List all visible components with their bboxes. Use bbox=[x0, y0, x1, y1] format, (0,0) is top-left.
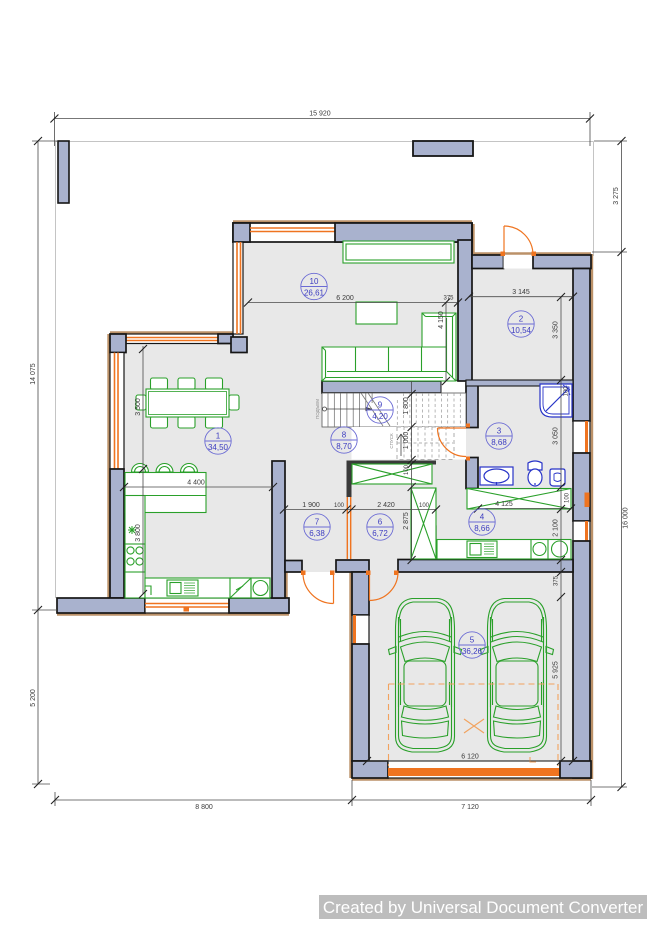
svg-text:8,70: 8,70 bbox=[336, 442, 352, 451]
svg-text:4: 4 bbox=[480, 513, 485, 522]
svg-text:4 150: 4 150 bbox=[438, 311, 445, 329]
svg-text:100: 100 bbox=[404, 464, 410, 475]
svg-text:3 500: 3 500 bbox=[135, 398, 142, 416]
svg-text:6,72: 6,72 bbox=[372, 529, 388, 538]
svg-text:2 875: 2 875 bbox=[403, 512, 410, 530]
svg-text:8,66: 8,66 bbox=[474, 524, 490, 533]
svg-text:34,50: 34,50 bbox=[208, 443, 229, 452]
svg-text:6: 6 bbox=[378, 518, 383, 527]
svg-text:3: 3 bbox=[497, 427, 502, 436]
svg-text:100: 100 bbox=[564, 386, 570, 397]
svg-text:6,38: 6,38 bbox=[309, 529, 325, 538]
svg-text:6 120: 6 120 bbox=[461, 754, 479, 761]
svg-text:10: 10 bbox=[310, 277, 319, 286]
svg-text:375: 375 bbox=[554, 575, 560, 586]
svg-text:2 420: 2 420 bbox=[377, 502, 395, 509]
svg-text:375: 375 bbox=[443, 296, 454, 302]
svg-text:5: 5 bbox=[470, 636, 475, 645]
svg-text:10,54: 10,54 bbox=[511, 326, 532, 335]
svg-text:3 145: 3 145 bbox=[512, 289, 530, 296]
svg-text:100: 100 bbox=[565, 492, 571, 503]
svg-text:6 200: 6 200 bbox=[336, 295, 354, 302]
svg-text:3 050: 3 050 bbox=[553, 427, 560, 445]
svg-text:СПУСК: СПУСК bbox=[389, 433, 394, 449]
svg-text:2 100: 2 100 bbox=[553, 519, 560, 537]
svg-text:7: 7 bbox=[315, 518, 320, 527]
svg-text:26,61: 26,61 bbox=[304, 289, 325, 298]
svg-text:1: 1 bbox=[216, 432, 221, 441]
svg-text:8: 8 bbox=[342, 431, 347, 440]
svg-text:15 920: 15 920 bbox=[309, 111, 331, 118]
svg-text:4 400: 4 400 bbox=[187, 480, 205, 487]
svg-text:1 800: 1 800 bbox=[403, 397, 410, 415]
svg-text:100: 100 bbox=[334, 503, 345, 509]
svg-text:100: 100 bbox=[419, 503, 430, 509]
svg-text:Created by Universal Document: Created by Universal Document Converter bbox=[323, 898, 644, 917]
svg-text:ПОДЪЕМ: ПОДЪЕМ bbox=[315, 399, 320, 419]
svg-text:4,20: 4,20 bbox=[372, 412, 388, 421]
svg-text:5 200: 5 200 bbox=[30, 689, 37, 707]
svg-text:14 075: 14 075 bbox=[30, 363, 37, 385]
svg-text:1 900: 1 900 bbox=[302, 502, 320, 509]
svg-text:9: 9 bbox=[378, 401, 383, 410]
svg-text:8 800: 8 800 bbox=[195, 804, 213, 811]
svg-text:16 000: 16 000 bbox=[623, 507, 630, 529]
svg-text:36,26: 36,26 bbox=[462, 647, 483, 656]
svg-text:4 125: 4 125 bbox=[495, 501, 513, 508]
svg-text:8,68: 8,68 bbox=[491, 438, 507, 447]
svg-text:1 000: 1 000 bbox=[403, 432, 410, 450]
svg-text:3 800: 3 800 bbox=[135, 524, 142, 542]
svg-text:2: 2 bbox=[519, 315, 524, 324]
svg-text:3 275: 3 275 bbox=[613, 187, 620, 205]
svg-text:5 925: 5 925 bbox=[553, 661, 560, 679]
svg-text:3 350: 3 350 bbox=[553, 321, 560, 339]
svg-text:7 120: 7 120 bbox=[461, 804, 479, 811]
